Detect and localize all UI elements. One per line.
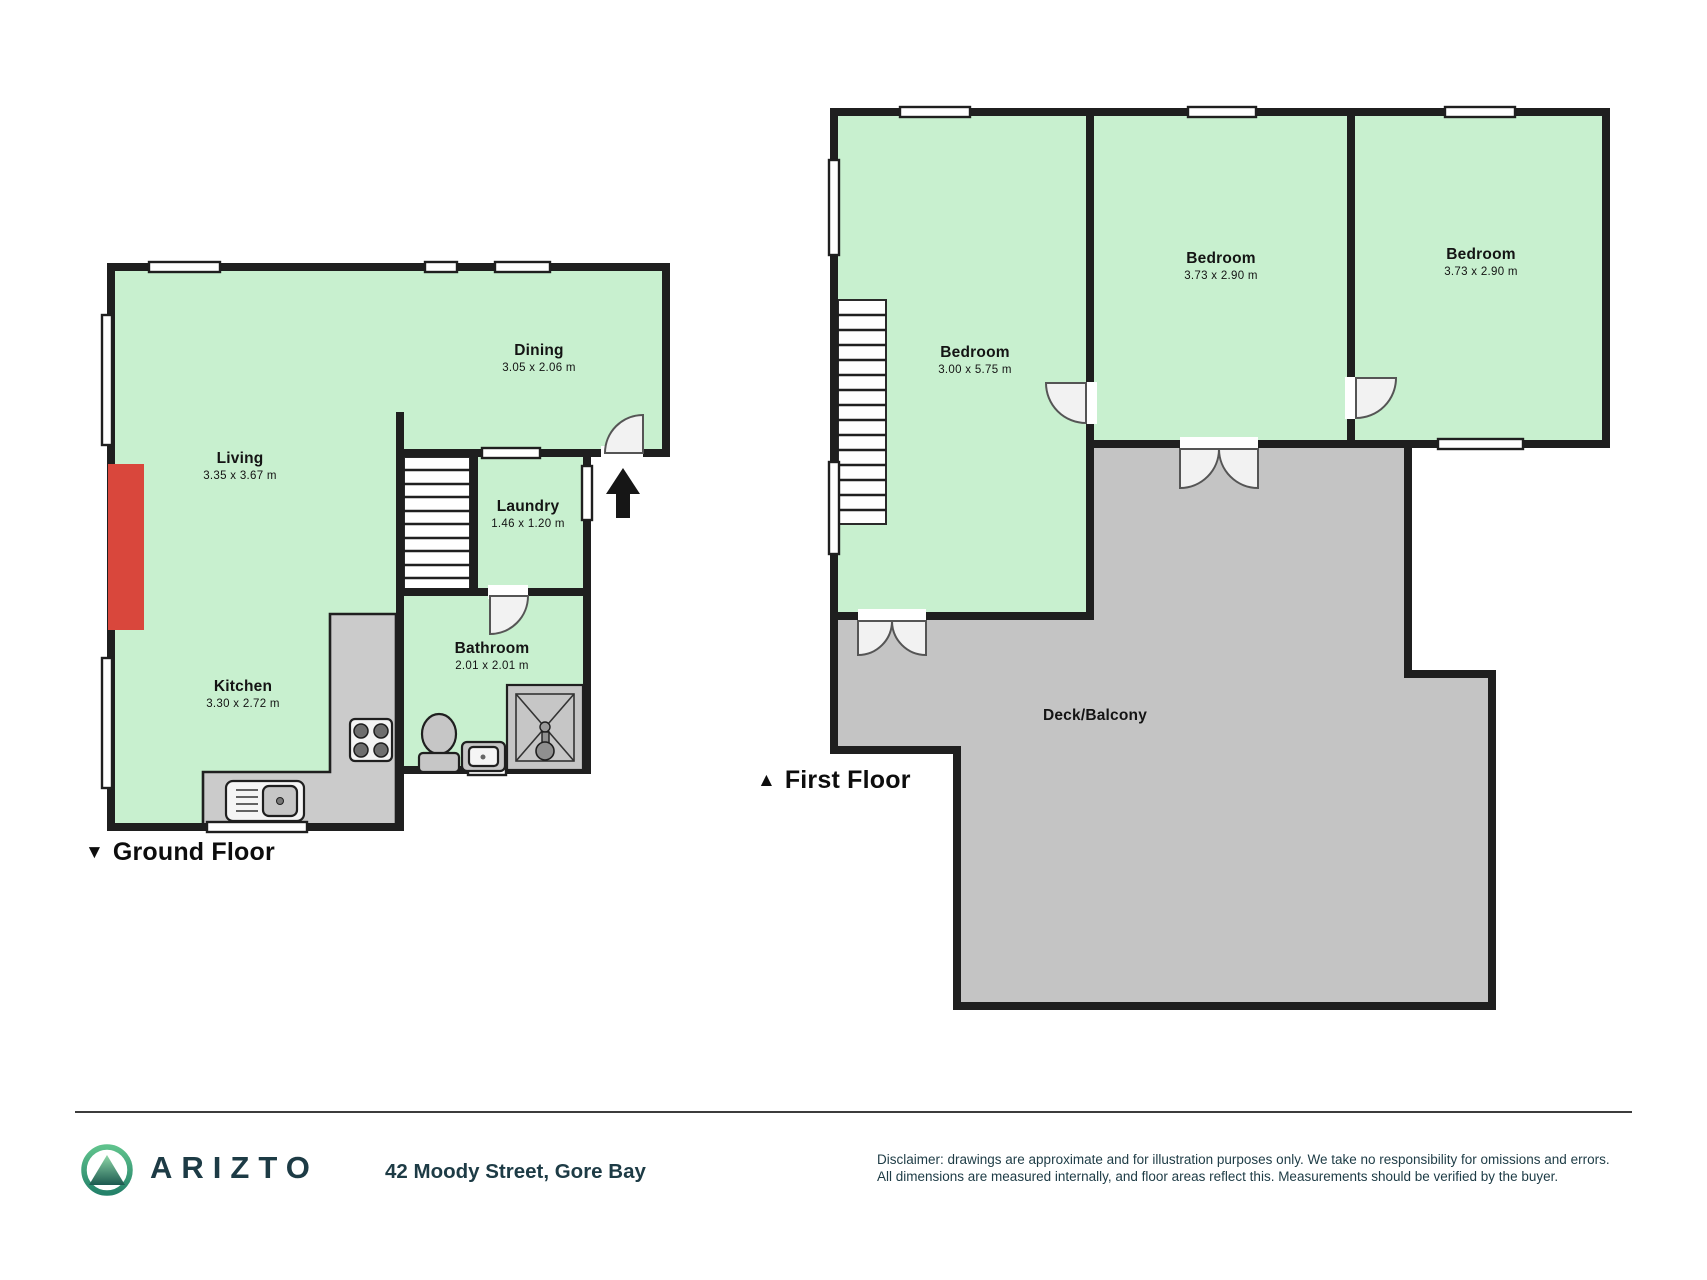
ground-floor-title: ▼ Ground Floor [85,838,275,867]
kitchen-sink [226,781,304,821]
first-floor-title: ▲ First Floor [757,766,911,795]
room-name: Bedroom [1184,250,1258,268]
ground-floor-stairs [404,457,470,589]
room-dims: 3.30 x 2.72 m [206,698,280,710]
room-name: Bedroom [938,344,1012,362]
dining-label: Dining 3.05 x 2.06 m [502,342,576,374]
toilet [419,714,459,772]
first-floor-stairs [838,300,886,524]
shower [507,685,583,770]
ground-floor-plan [102,262,666,832]
bathroom-label: Bathroom 2.01 x 2.01 m [455,640,530,672]
brand-name: ARIZTO [150,1150,319,1186]
down-triangle-icon: ▼ [85,842,104,864]
room-dims: 3.00 x 5.75 m [938,364,1012,376]
first-floor-plan [829,107,1606,1006]
deck-label: Deck/Balcony [1043,707,1147,725]
room-name: Deck/Balcony [1043,707,1147,725]
room-name: Kitchen [206,678,280,696]
room-name: Bedroom [1444,246,1518,264]
disclaimer-line-1: Disclaimer: drawings are approximate and… [877,1152,1677,1169]
entry-arrow-icon [606,468,640,518]
room-dims: 3.05 x 2.06 m [502,362,576,374]
arizto-logo-icon [78,1142,136,1200]
room-dims: 1.46 x 1.20 m [491,518,565,530]
floorplan-drawing [0,0,1707,1280]
property-address: 42 Moody Street, Gore Bay [385,1160,646,1184]
room-name: Living [203,450,277,468]
floor-title-text: Ground Floor [113,838,275,867]
footer-divider [75,1111,1632,1113]
room-dims: 3.73 x 2.90 m [1184,270,1258,282]
laundry-label: Laundry 1.46 x 1.20 m [491,498,565,530]
living-label: Living 3.35 x 3.67 m [203,450,277,482]
up-triangle-icon: ▲ [757,770,776,792]
bathroom-basin [462,742,505,771]
room-dims: 2.01 x 2.01 m [455,660,530,672]
kitchen-label: Kitchen 3.30 x 2.72 m [206,678,280,710]
bedroom2-label: Bedroom 3.73 x 2.90 m [1184,250,1258,282]
bedroom3-label: Bedroom 3.73 x 2.90 m [1444,246,1518,278]
floor-title-text: First Floor [785,766,911,795]
fireplace [108,464,144,630]
bedroom1-label: Bedroom 3.00 x 5.75 m [938,344,1012,376]
room-dims: 3.35 x 3.67 m [203,470,277,482]
room-name: Bathroom [455,640,530,658]
stove [350,719,392,761]
room-dims: 3.73 x 2.90 m [1444,266,1518,278]
room-name: Laundry [491,498,565,516]
floorplan-page: Living 3.35 x 3.67 m Dining 3.05 x 2.06 … [0,0,1707,1280]
disclaimer-text: Disclaimer: drawings are approximate and… [877,1152,1677,1185]
room-name: Dining [502,342,576,360]
disclaimer-line-2: All dimensions are measured internally, … [877,1169,1677,1186]
